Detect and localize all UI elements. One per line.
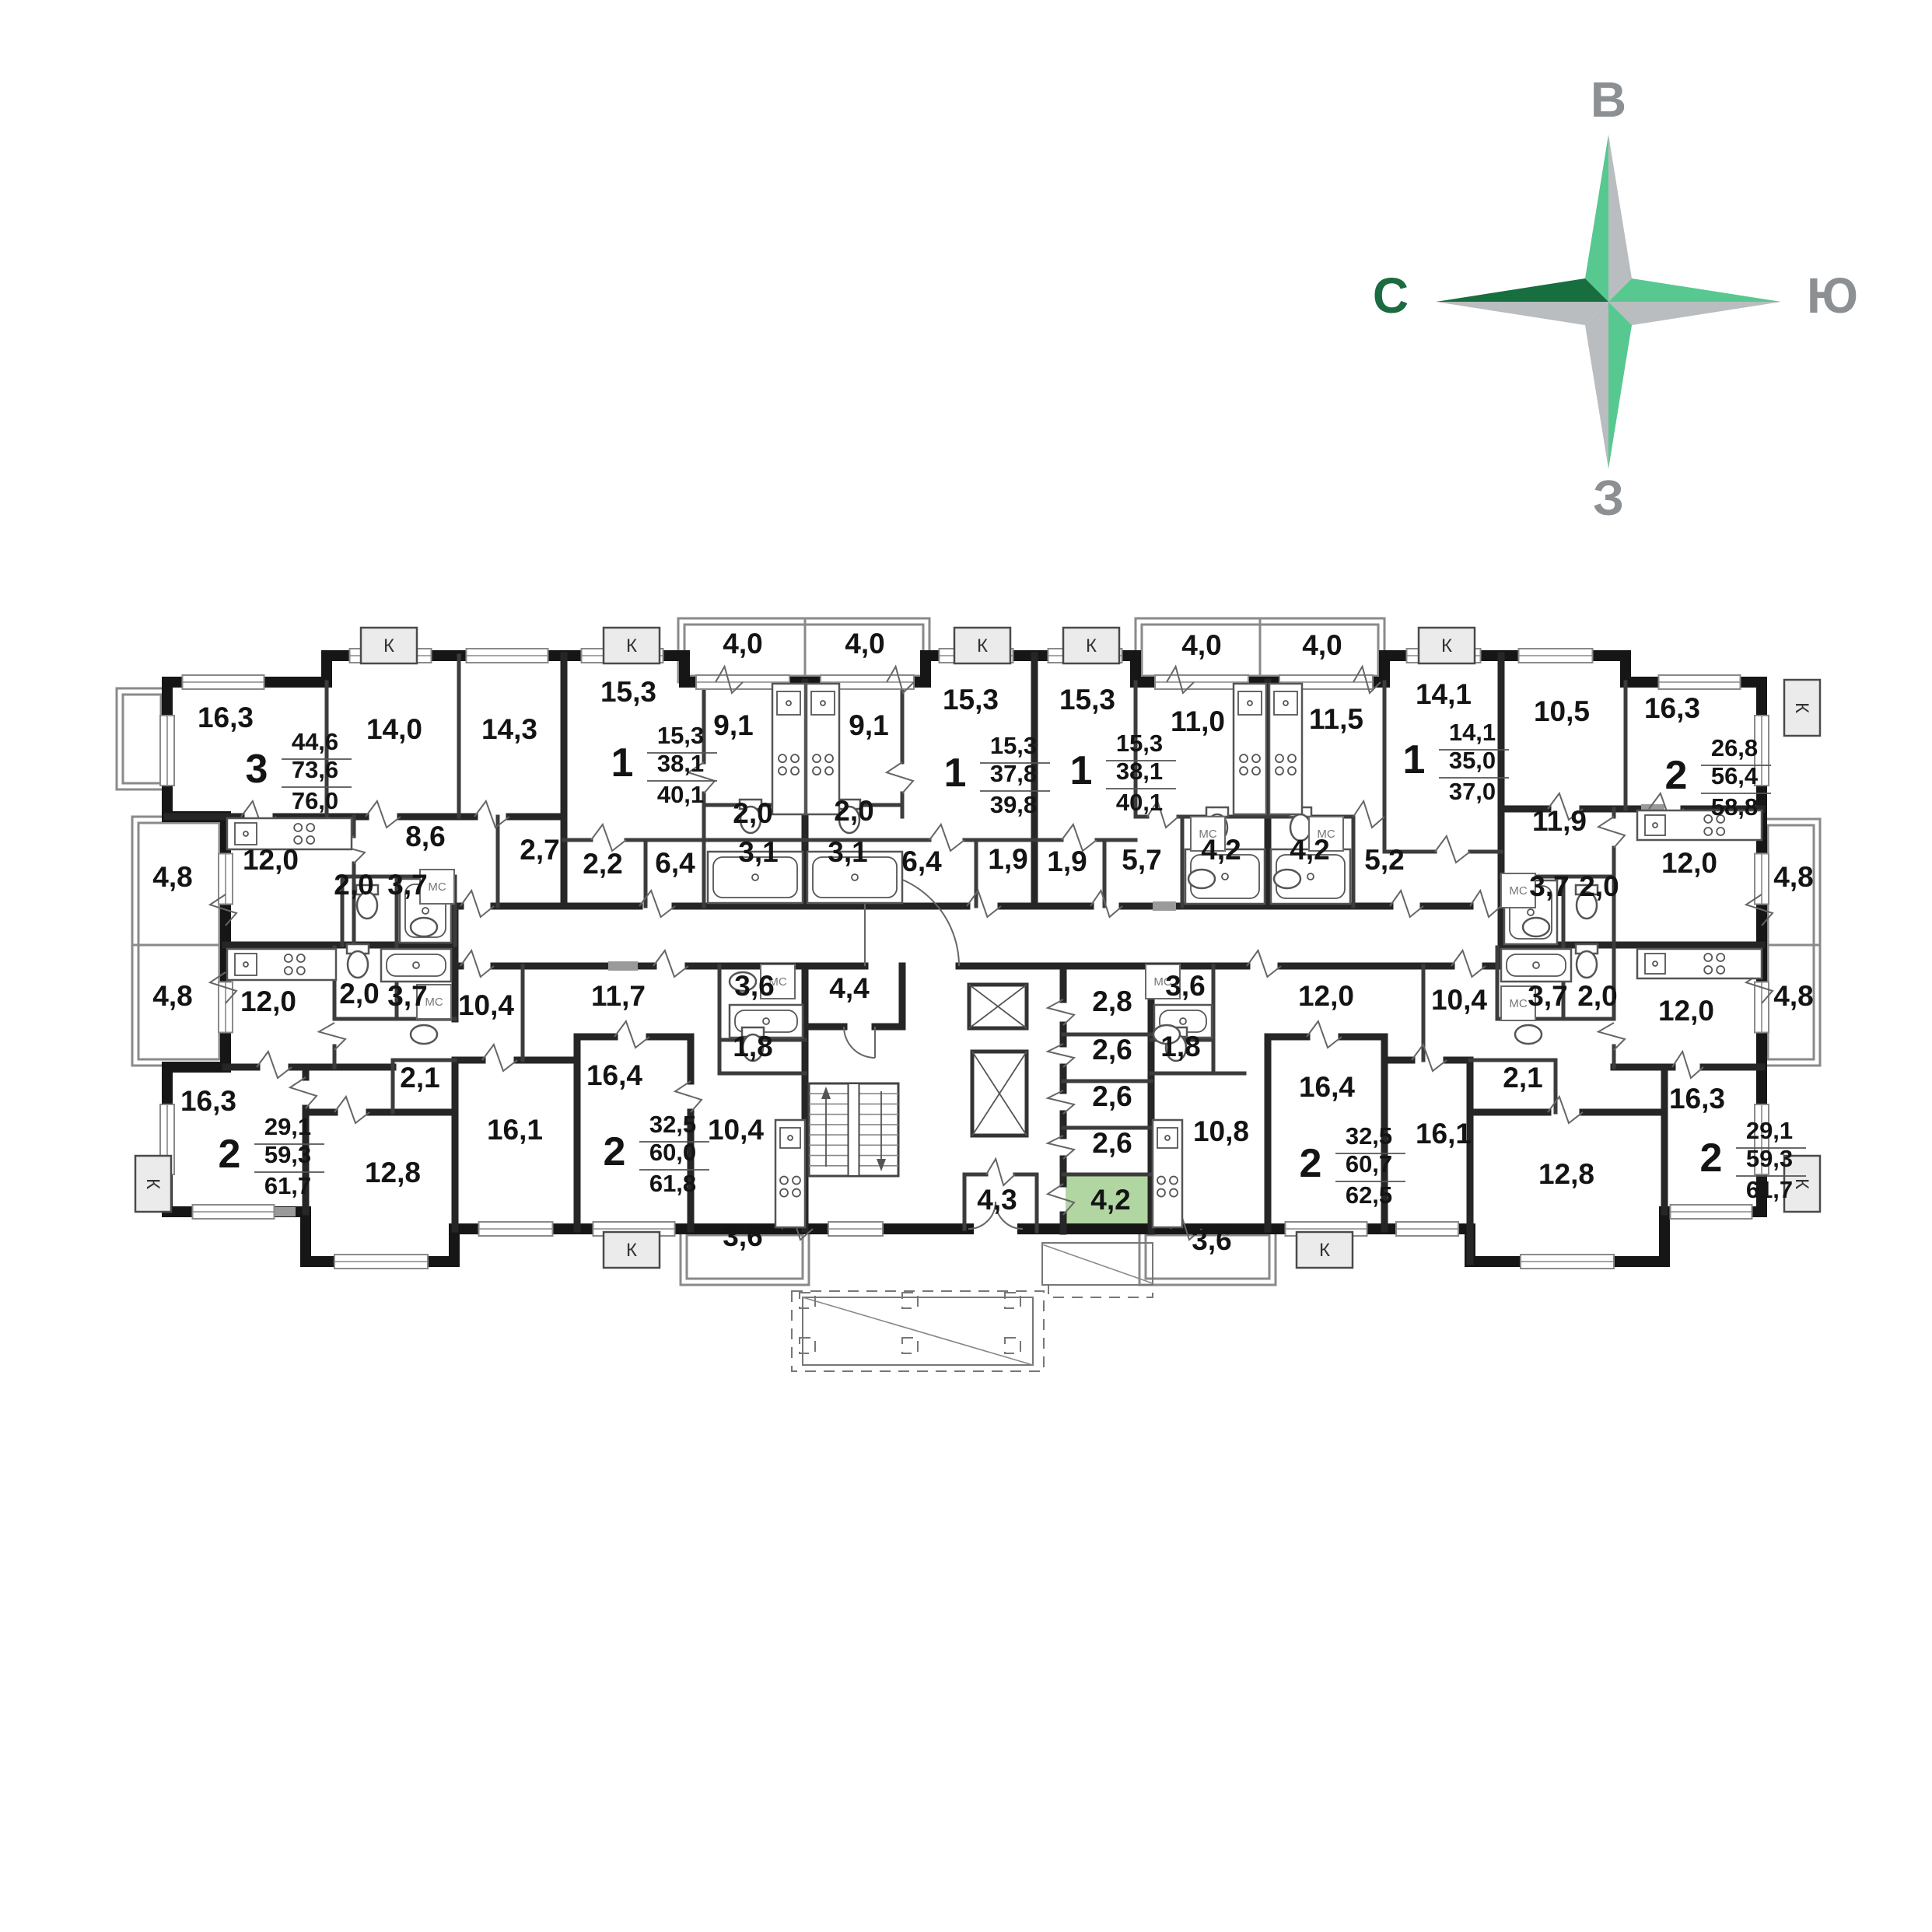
room-area-label: 4,4 xyxy=(829,972,870,1004)
room-area-label: 3,6 xyxy=(1192,1224,1231,1256)
room-area-label: 4,2 xyxy=(1290,834,1329,866)
apartment-rooms-count: 1 xyxy=(611,740,634,786)
room-area-label: 1,8 xyxy=(733,1031,772,1062)
door-opening-zigzag xyxy=(675,1081,702,1112)
room-area-label: 3,7 xyxy=(387,869,427,901)
room-area-label: 4,8 xyxy=(1773,861,1813,893)
room-area-label: 1,8 xyxy=(1160,1031,1200,1062)
mc-marker-label: МС xyxy=(1509,884,1527,898)
door-opening-zigzag xyxy=(653,950,688,977)
compass-letter-south: Ю xyxy=(1807,268,1858,324)
sink-basin xyxy=(1274,870,1300,888)
apartment-total-area: 59,3 xyxy=(1746,1145,1793,1172)
door-swing-arc xyxy=(844,1027,875,1058)
door-opening-zigzag xyxy=(474,801,509,828)
room-area-label: 12,0 xyxy=(1658,995,1714,1027)
room-area-label: 1,9 xyxy=(988,843,1027,875)
compass-rose: ВЮЗС xyxy=(1373,72,1858,526)
room-area-label: 11,0 xyxy=(1171,705,1225,737)
apartment-living-area: 32,5 xyxy=(649,1111,696,1138)
apartment-summary: 115,338,140,1 xyxy=(1070,730,1176,816)
apartment-total-area: 56,4 xyxy=(1711,762,1759,789)
apartment-living-area: 26,8 xyxy=(1711,734,1758,761)
room-area-label: 4,8 xyxy=(152,980,192,1012)
room-area-label: 16,3 xyxy=(180,1085,236,1117)
apartment-rooms-count: 2 xyxy=(1300,1141,1322,1186)
apartment-summary: 232,560,762,5 xyxy=(1300,1122,1405,1209)
room-area-label: 16,1 xyxy=(1416,1118,1472,1150)
room-area-label: 11,5 xyxy=(1309,703,1363,735)
room-area-label: 2,0 xyxy=(834,795,873,827)
apartment-rooms-count: 2 xyxy=(604,1129,626,1174)
room-area-label: 9,1 xyxy=(713,709,753,741)
room-area-label: 6,4 xyxy=(901,845,942,877)
door-opening-zigzag xyxy=(257,1052,292,1078)
room-area-label: 16,3 xyxy=(1669,1083,1725,1115)
room-area-label: 2,6 xyxy=(1092,1127,1132,1159)
staircase xyxy=(809,1083,898,1176)
room-area-label: 14,0 xyxy=(366,713,422,745)
door-opening-zigzag xyxy=(366,801,401,828)
room-area-label: 4,2 xyxy=(1090,1184,1130,1216)
room-area-label: 5,7 xyxy=(1122,844,1161,876)
room-area-label: 4,0 xyxy=(723,628,762,660)
door-opening-zigzag xyxy=(1451,950,1486,977)
door-opening-zigzag xyxy=(482,1045,517,1071)
room-area-label: 3,7 xyxy=(1528,980,1567,1012)
balcony-outline xyxy=(1762,819,1820,1066)
entrance-porch xyxy=(792,1243,1153,1371)
compass-point xyxy=(1608,135,1632,302)
room-area-label: 2,1 xyxy=(1503,1062,1542,1094)
door-opening-zigzag xyxy=(887,762,913,793)
balcony-inner-line xyxy=(123,695,161,783)
porch-column-mark xyxy=(902,1338,918,1353)
door-opening-zigzag xyxy=(1672,1052,1703,1078)
room-area-label: 4,3 xyxy=(977,1184,1017,1216)
room-area-label: 4,8 xyxy=(152,861,192,893)
sink-basin xyxy=(1523,918,1549,936)
k-marker: К xyxy=(1063,628,1119,663)
compass-point xyxy=(1608,302,1632,469)
apartment-area-with-balcony: 61,7 xyxy=(264,1172,311,1199)
room-area-label: 12,8 xyxy=(365,1157,421,1188)
room-area-label: 16,3 xyxy=(1644,692,1700,724)
k-marker: К xyxy=(604,628,660,663)
room-area-label: 15,3 xyxy=(1059,684,1115,716)
room-area-label: 2,0 xyxy=(334,869,373,901)
compass-point xyxy=(1436,278,1608,302)
apartment-summary: 115,337,839,8 xyxy=(944,732,1050,818)
room-area-label: 3,7 xyxy=(1529,870,1569,902)
apartment-living-area: 14,1 xyxy=(1449,719,1496,746)
k-marker: К xyxy=(1784,680,1820,736)
apartment-living-area: 15,3 xyxy=(657,722,704,749)
door-opening-zigzag xyxy=(460,891,494,917)
room-area-label: 9,1 xyxy=(849,709,888,741)
apartment-rooms-count: 2 xyxy=(1700,1136,1723,1181)
door-opening-zigzag xyxy=(1048,999,1074,1025)
k-marker-label: К xyxy=(383,635,394,656)
room-area-label: 10,4 xyxy=(458,989,514,1021)
apartment-total-area: 38,1 xyxy=(657,750,704,777)
door-opening-zigzag xyxy=(1435,836,1470,863)
room-area-label: 10,4 xyxy=(1431,984,1487,1016)
apartment-summary: 344,673,676,0 xyxy=(246,728,352,814)
apartment-rooms-count: 2 xyxy=(219,1132,241,1177)
k-marker: К xyxy=(361,628,417,663)
door-opening-zigzag xyxy=(614,1021,649,1048)
porch-column-mark xyxy=(1005,1293,1020,1308)
room-area-label: 3,1 xyxy=(828,836,867,868)
room-area-label: 2,0 xyxy=(339,978,379,1010)
apartment-total-area: 60,0 xyxy=(649,1139,696,1166)
k-marker-label: К xyxy=(626,635,637,656)
apartment-rooms-count: 1 xyxy=(1403,737,1426,782)
room-area-label: 2,0 xyxy=(733,797,772,829)
apartment-total-area: 35,0 xyxy=(1449,747,1496,774)
k-marker-label: К xyxy=(142,1178,163,1189)
room-area-label: 16,1 xyxy=(487,1114,543,1146)
porch-ramp-edge xyxy=(1048,1285,1153,1297)
room-area-label: 12,0 xyxy=(1298,980,1354,1012)
apartment-area-with-balcony: 40,1 xyxy=(657,781,704,808)
apartment-area-with-balcony: 37,0 xyxy=(1449,778,1496,805)
room-area-label: 3,1 xyxy=(738,836,778,868)
apartment-area-with-balcony: 40,1 xyxy=(1116,789,1163,816)
apartment-total-area: 73,6 xyxy=(292,756,338,783)
room-area-label: 2,1 xyxy=(400,1062,439,1094)
apartment-summary: 232,560,061,8 xyxy=(604,1111,709,1197)
door-opening-zigzag xyxy=(319,1023,345,1050)
door-opening-zigzag xyxy=(1598,1023,1625,1050)
porch-ramp-diagonal xyxy=(1042,1244,1153,1283)
room-area-label: 10,4 xyxy=(708,1114,764,1146)
k-marker-label: К xyxy=(1086,635,1097,656)
room-area-label: 3,6 xyxy=(1165,970,1205,1002)
apartment-total-area: 59,3 xyxy=(264,1141,311,1168)
apartment-living-area: 29,1 xyxy=(264,1113,311,1140)
room-area-label: 2,6 xyxy=(1092,1034,1132,1066)
elevator-shaft xyxy=(972,1052,1027,1136)
apartment-summary: 115,338,140,1 xyxy=(611,722,717,808)
k-marker-label: К xyxy=(1319,1240,1330,1261)
apartment-rooms-count: 2 xyxy=(1665,753,1688,798)
room-area-label: 12,0 xyxy=(243,844,299,876)
porch-diagonal xyxy=(803,1297,1033,1365)
door-opening-zigzag xyxy=(591,824,626,851)
k-marker: К xyxy=(604,1232,660,1268)
balcony-outline xyxy=(132,817,226,1066)
door-opening-zigzag xyxy=(1470,891,1501,917)
compass-point xyxy=(1608,302,1781,325)
room-area-label: 2,8 xyxy=(1092,985,1132,1017)
room-area-label: 5,2 xyxy=(1364,844,1404,876)
compass-letter-west: З xyxy=(1593,470,1624,526)
door-opening-zigzag xyxy=(1548,1097,1583,1123)
apartment-summary: 229,159,361,7 xyxy=(219,1113,324,1199)
apartment-area-with-balcony: 62,5 xyxy=(1346,1181,1392,1209)
room-area-label: 12,0 xyxy=(240,985,296,1017)
compass-point xyxy=(1608,278,1781,302)
apartment-rooms-count: 1 xyxy=(1070,748,1093,793)
k-marker-label: К xyxy=(1441,635,1452,656)
elevator-shaft xyxy=(969,985,1027,1028)
room-area-label: 4,8 xyxy=(1773,980,1813,1012)
door-opening-zigzag xyxy=(967,891,1001,917)
stair-stringer xyxy=(849,1083,859,1176)
door-opening-zigzag xyxy=(1412,1045,1447,1071)
mc-marker-label: МС xyxy=(428,880,446,894)
k-marker-label: К xyxy=(1791,702,1812,713)
apartment-area-with-balcony: 61,8 xyxy=(649,1170,696,1197)
door-opening-zigzag xyxy=(1307,1021,1342,1048)
room-area-label: 16,4 xyxy=(1299,1071,1355,1103)
balcony-inner-line xyxy=(138,823,219,1059)
room-area-label: 16,3 xyxy=(198,702,254,733)
toilet-bowl xyxy=(348,951,368,978)
apartment-living-area: 29,1 xyxy=(1746,1117,1793,1144)
apartment-living-area: 15,3 xyxy=(990,732,1037,759)
room-area-label: 14,1 xyxy=(1416,678,1472,710)
door-opening-zigzag xyxy=(334,1097,369,1123)
room-area-label: 14,3 xyxy=(481,713,537,745)
apartment-area-with-balcony: 58,8 xyxy=(1711,793,1758,821)
compass-letter-east: В xyxy=(1591,72,1626,128)
apartment-total-area: 37,8 xyxy=(990,760,1037,787)
apartment-summary: 229,159,361,7 xyxy=(1700,1117,1806,1203)
sink-basin xyxy=(411,918,437,936)
room-area-label: 8,6 xyxy=(405,821,445,852)
room-area-label: 4,0 xyxy=(1302,629,1342,661)
room-area-label: 10,8 xyxy=(1193,1115,1249,1147)
door-opening-zigzag xyxy=(460,950,494,977)
room-area-label: 1,9 xyxy=(1047,845,1087,877)
mc-marker-label: МС xyxy=(425,996,443,1009)
k-marker-label: К xyxy=(626,1240,637,1261)
door-opening-zigzag xyxy=(1390,891,1423,917)
door-opening-zigzag xyxy=(1598,817,1625,848)
porch-column-mark xyxy=(1005,1338,1020,1353)
room-area-label: 16,4 xyxy=(586,1059,642,1091)
room-area-label: 4,2 xyxy=(1201,834,1241,866)
compass-point xyxy=(1436,302,1608,325)
apartment-living-area: 15,3 xyxy=(1116,730,1163,757)
room-area-label: 3,7 xyxy=(387,980,427,1012)
apartment-rooms-count: 3 xyxy=(246,747,268,792)
room-area-label: 15,3 xyxy=(600,676,656,708)
floor-plan-drawing: ВЮЗСККККККККККМСМСМСМСМСМСМСМС16,314,014… xyxy=(0,0,1932,1932)
apartment-area-with-balcony: 76,0 xyxy=(292,787,338,814)
sink-basin xyxy=(1188,870,1215,888)
porch-column-mark xyxy=(902,1293,918,1308)
room-area-label: 2,0 xyxy=(1579,870,1619,902)
apartment-area-with-balcony: 61,7 xyxy=(1746,1176,1793,1203)
apartment-living-area: 32,5 xyxy=(1346,1122,1392,1150)
room-area-label: 3,6 xyxy=(723,1220,762,1252)
door-opening-zigzag xyxy=(986,1159,1015,1185)
room-area-label: 4,0 xyxy=(1181,629,1221,661)
room-area-label: 12,0 xyxy=(1661,847,1717,879)
k-marker-label: К xyxy=(977,635,988,656)
room-area-label: 15,3 xyxy=(943,684,999,716)
mc-marker-label: МС xyxy=(1509,997,1527,1010)
sink-basin xyxy=(1515,1025,1542,1044)
room-area-label: 2,7 xyxy=(520,834,559,866)
room-area-label: 2,2 xyxy=(583,848,622,880)
k-marker: К xyxy=(135,1156,171,1212)
room-area-label: 2,0 xyxy=(1577,980,1617,1012)
apartment-total-area: 60,7 xyxy=(1346,1150,1392,1178)
door-opening-zigzag xyxy=(1247,950,1281,977)
k-marker-label: К xyxy=(1791,1178,1812,1189)
door-opening-zigzag xyxy=(1353,801,1384,828)
room-area-label: 10,5 xyxy=(1534,695,1590,727)
compass-point xyxy=(1585,302,1608,469)
room-area-label: 12,8 xyxy=(1538,1158,1594,1190)
floorplan-page: ВЮЗСККККККККККМСМСМСМСМСМСМСМС16,314,014… xyxy=(0,0,1932,1932)
room-area-label: 11,9 xyxy=(1532,805,1587,837)
room-area-label: 6,4 xyxy=(655,847,695,879)
compass-point xyxy=(1585,135,1608,302)
sink-basin xyxy=(411,1025,437,1044)
k-marker: К xyxy=(1297,1232,1353,1268)
apartment-summary: 114,135,037,0 xyxy=(1403,719,1509,805)
room-area-label: 2,6 xyxy=(1092,1080,1132,1112)
apartment-area-with-balcony: 39,8 xyxy=(990,791,1037,818)
room-area-label: 4,0 xyxy=(845,628,884,660)
compass-letter-north: С xyxy=(1373,268,1409,324)
k-marker: К xyxy=(954,628,1010,663)
apartment-rooms-count: 1 xyxy=(944,751,967,796)
room-area-label: 11,7 xyxy=(591,980,646,1012)
apartment-living-area: 44,6 xyxy=(292,728,338,755)
door-opening-zigzag xyxy=(290,1077,317,1108)
room-area-label: 3,6 xyxy=(734,970,774,1002)
k-marker: К xyxy=(1419,628,1475,663)
toilet-bowl xyxy=(1577,951,1597,978)
apartment-total-area: 38,1 xyxy=(1116,758,1163,785)
